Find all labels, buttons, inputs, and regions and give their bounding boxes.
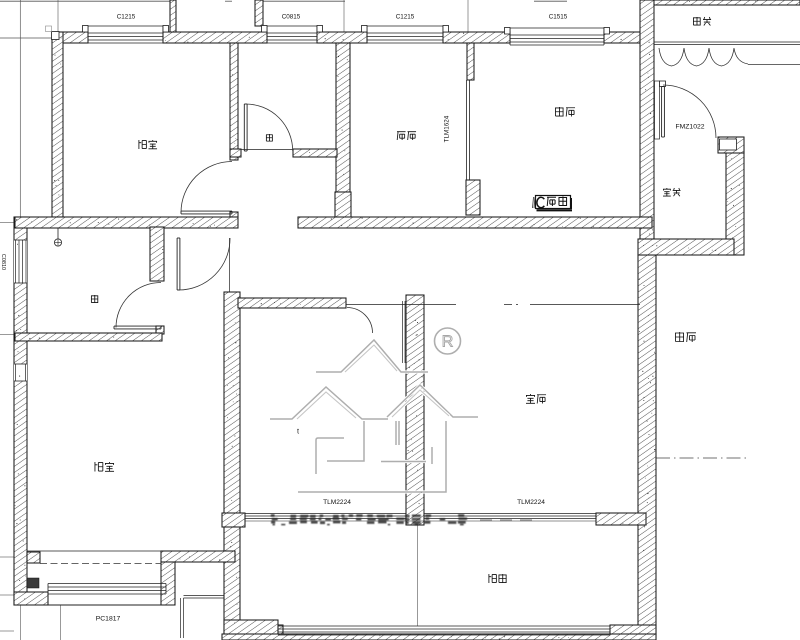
svg-text:R: R: [442, 334, 454, 351]
svg-text:C0815: C0815: [282, 14, 301, 21]
svg-text:C1215: C1215: [396, 14, 415, 21]
svg-text:C0810: C0810: [0, 254, 6, 270]
svg-text:C1515: C1515: [549, 14, 568, 21]
svg-text:FMZ1022: FMZ1022: [675, 124, 704, 131]
svg-text:PC1817: PC1817: [96, 616, 121, 623]
svg-text:TLM2224: TLM2224: [323, 499, 351, 506]
svg-text:TLM1624: TLM1624: [444, 115, 451, 142]
svg-text:TLM2224: TLM2224: [517, 499, 545, 506]
svg-text:C1215: C1215: [117, 14, 136, 21]
